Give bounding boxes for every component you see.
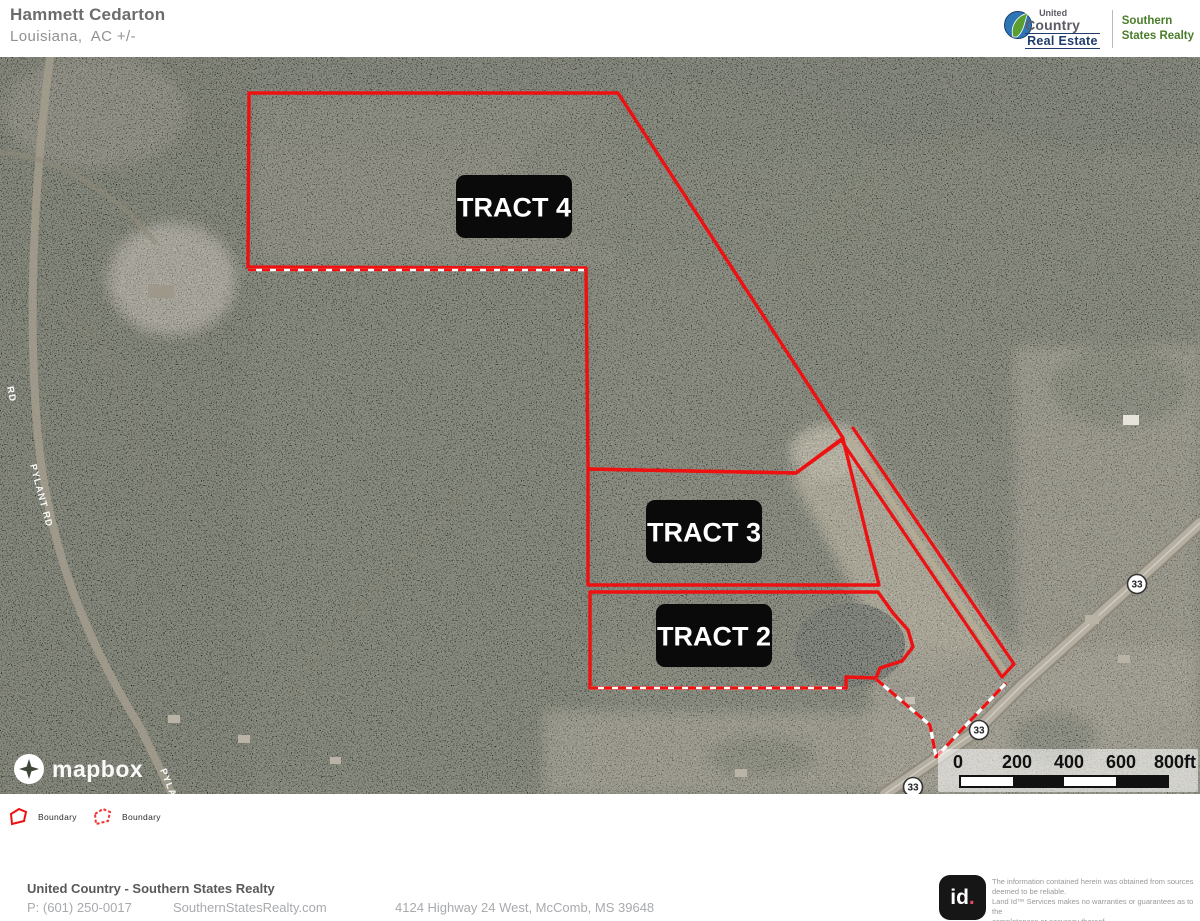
disclaimer-line: deemed to be reliable. <box>992 887 1200 897</box>
united-country-logo: United Country Real Estate <box>1003 9 1100 50</box>
scale-segment <box>1064 777 1116 786</box>
land-id-dot: . <box>969 886 975 910</box>
footer-phone: P: (601) 250-0017 <box>27 900 173 915</box>
route-shield-number: 33 <box>1131 580 1143 591</box>
office-name: Southern States Realty <box>1122 14 1196 44</box>
disclaimer-line: Land Id™ Services makes no warranties or… <box>992 897 1200 917</box>
scale-bar-segments <box>959 775 1169 788</box>
tract-label: TRACT 2 <box>656 604 772 667</box>
office-line1: Southern <box>1122 14 1194 29</box>
mapbox-wordmark: mapbox <box>52 756 143 783</box>
legend-label: Boundary <box>38 812 77 822</box>
scale-segment <box>1116 777 1168 786</box>
legend-item: Boundary <box>92 807 161 827</box>
legend-label: Boundary <box>122 812 161 822</box>
property-map-flyer: Hammett Cedarton Louisiana, AC +/- Unite… <box>0 0 1200 921</box>
brand-area: United Country Real Estate Southern Stat… <box>1003 6 1196 52</box>
office-line2: States Realty <box>1122 29 1194 44</box>
scale-label: 400 <box>1054 752 1084 773</box>
legend: BoundaryBoundary <box>0 794 1200 860</box>
united-country-wordmark: United Country Real Estate <box>1025 9 1100 50</box>
disclaimer-text: The information contained herein was obt… <box>992 877 1200 921</box>
logo-country: Country <box>1025 18 1100 32</box>
mapbox-icon <box>13 753 45 785</box>
scale-label: 600 <box>1106 752 1136 773</box>
header: Hammett Cedarton Louisiana, AC +/- Unite… <box>0 0 1200 57</box>
footer-address: 4124 Highway 24 West, McComb, MS 39648 <box>395 900 654 915</box>
scale-segment <box>1013 777 1065 786</box>
land-id-logo: id. <box>939 875 986 920</box>
logo-divider <box>1112 10 1113 48</box>
scale-label: 200 <box>1002 752 1032 773</box>
route-shield-number: 33 <box>973 726 985 737</box>
route-shield: 33 <box>1128 575 1147 594</box>
logo-real-estate: Real Estate <box>1025 33 1100 50</box>
route-shield: 33 <box>904 778 923 795</box>
disclaimer-line: completeness or accuracy thereof. <box>992 917 1200 921</box>
page-subtitle: Louisiana, AC +/- <box>10 28 136 45</box>
disclaimer-line: The information contained herein was obt… <box>992 877 1200 887</box>
solid-boundary-icon <box>8 807 28 827</box>
footer-contact-line: P: (601) 250-0017 SouthernStatesRealty.c… <box>27 900 654 915</box>
page-title: Hammett Cedarton <box>10 5 165 25</box>
scale-bar: 0200400600800ft <box>938 749 1198 792</box>
footer-company: United Country - Southern States Realty <box>27 881 275 896</box>
scale-label: 800ft <box>1154 752 1196 773</box>
dashed-boundary-icon <box>92 807 112 827</box>
scale-segment <box>961 777 1013 786</box>
map-canvas: PYLANT RDPYLANT RDRD 333333 TRACT 4TRACT… <box>0 57 1200 794</box>
tract-label-text: TRACT 2 <box>657 622 771 652</box>
scale-label: 0 <box>953 752 963 773</box>
route-shield-number: 33 <box>907 783 919 794</box>
aerial-map: PYLANT RDPYLANT RDRD 333333 TRACT 4TRACT… <box>0 57 1200 794</box>
legend-item: Boundary <box>8 807 77 827</box>
route-shield: 33 <box>970 721 989 740</box>
tract-label-text: TRACT 4 <box>457 193 571 223</box>
mapbox-logo[interactable]: mapbox <box>13 753 143 785</box>
land-id-text: id <box>950 886 969 910</box>
tract-label: TRACT 4 <box>456 175 572 238</box>
tract-label-text: TRACT 3 <box>647 518 761 548</box>
tract-label: TRACT 3 <box>646 500 762 563</box>
footer-website: SouthernStatesRealty.com <box>173 900 395 915</box>
